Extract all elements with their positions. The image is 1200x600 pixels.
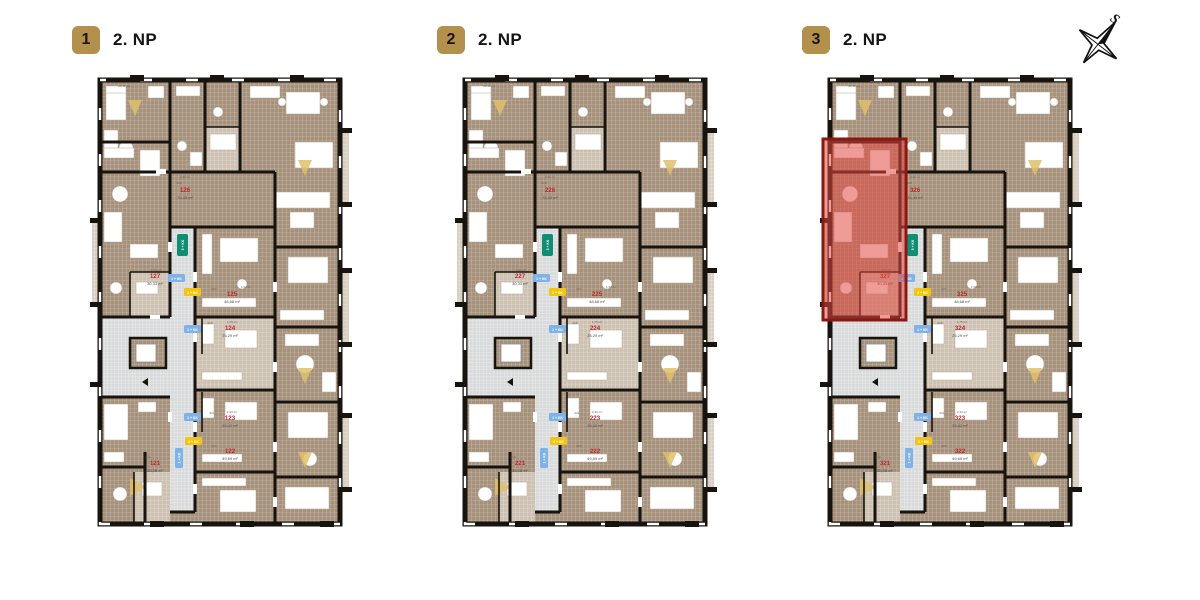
svg-text:30,33 m²: 30,33 m² [512, 281, 528, 286]
svg-text:75,43 m²: 75,43 m² [177, 195, 193, 200]
type-badge-blue: 1 + KK [175, 448, 183, 468]
type-badge-yellow: 2 + KK [549, 288, 566, 296]
svg-text:3,32 m²: 3,32 m² [180, 175, 190, 179]
svg-text:2 + KK: 2 + KK [917, 291, 928, 295]
type-badge-blue: 1 + KK [540, 448, 548, 468]
svg-text:024: 024 [941, 444, 946, 448]
svg-text:3 + KK: 3 + KK [546, 239, 550, 250]
svg-text:324: 324 [955, 325, 966, 332]
elevator [860, 338, 896, 368]
svg-text:2 + KK: 2 + KK [187, 291, 198, 295]
svg-text:75,43 m²: 75,43 m² [907, 195, 923, 200]
type-badge-green: 3 + KK [542, 234, 553, 256]
panel-header: 2 2. NP [437, 26, 737, 54]
svg-text:35,08 m²: 35,08 m² [877, 468, 893, 473]
svg-text:2 + KK: 2 + KK [553, 440, 564, 444]
svg-text:125: 125 [227, 291, 238, 298]
svg-text:2 + KK: 2 + KK [552, 291, 563, 295]
svg-text:123: 123 [225, 415, 236, 422]
svg-text:25,42 m²: 25,42 m² [587, 423, 603, 428]
compass-north-label: S [1107, 10, 1123, 27]
svg-text:025: 025 [207, 321, 212, 325]
type-badge-yellow: 2 + KK [184, 288, 201, 296]
page-canvas: 1 2. NP [0, 0, 1200, 600]
panel-header: 1 2. NP [72, 26, 372, 54]
svg-text:2,41 m²: 2,41 m² [516, 268, 526, 272]
svg-text:1,30 m²: 1,30 m² [606, 285, 616, 289]
svg-text:10,30 m²: 10,30 m² [848, 84, 860, 88]
svg-text:1,75 m²: 1,75 m² [227, 320, 237, 324]
svg-text:1 + KK: 1 + KK [543, 452, 547, 463]
svg-text:019: 019 [510, 455, 515, 459]
svg-text:49,69 m²: 49,69 m² [952, 456, 968, 461]
elevator [130, 338, 166, 368]
svg-text:3 + KK: 3 + KK [181, 239, 185, 250]
svg-text:1 + KK: 1 + KK [187, 328, 198, 332]
compass-icon: S [1066, 8, 1130, 72]
type-badge-yellow: 2 + KK [550, 437, 567, 445]
type-badge-yellow: 2 + KK [185, 437, 202, 445]
svg-text:226: 226 [545, 187, 556, 194]
svg-text:021: 021 [574, 411, 579, 415]
svg-text:48,68 m²: 48,68 m² [224, 299, 240, 304]
svg-text:024: 024 [211, 444, 216, 448]
floor-title: 2. NP [113, 30, 157, 50]
type-badge-blue: 1 + KK [914, 325, 931, 333]
svg-text:35,08 m²: 35,08 m² [512, 468, 528, 473]
floorplan-svg: 3,32 m² 028 2,41 m² 027 1,30 m² 025 1,75… [90, 72, 352, 548]
svg-text:48,68 m²: 48,68 m² [954, 299, 970, 304]
svg-text:028: 028 [176, 181, 181, 185]
type-badge-blue: 1 + KK [549, 413, 566, 421]
svg-text:1,75 m²: 1,75 m² [592, 320, 602, 324]
floorplan-svg: 3,32 m² 028 2,41 m² 027 1,30 m² 025 1,75… [820, 72, 1082, 548]
svg-text:025: 025 [937, 321, 942, 325]
type-badge-blue: 1 + KK [905, 448, 913, 468]
type-badge-green: 3 + KK [177, 234, 188, 256]
svg-text:027: 027 [576, 287, 581, 291]
svg-text:227: 227 [515, 273, 526, 280]
svg-text:121: 121 [150, 460, 161, 467]
svg-text:126: 126 [180, 187, 191, 194]
svg-text:30,33 m²: 30,33 m² [147, 281, 163, 286]
svg-text:1 + KK: 1 + KK [917, 416, 928, 420]
svg-text:2,33 m²: 2,33 m² [957, 410, 967, 414]
floorplan-panel: 1 2. NP [72, 26, 372, 548]
svg-text:028: 028 [541, 181, 546, 185]
svg-text:2,33 m²: 2,33 m² [227, 410, 237, 414]
svg-text:1,75 m²: 1,75 m² [957, 320, 967, 324]
panel-header: 3 2. NP [802, 26, 1102, 54]
svg-text:1 + KK: 1 + KK [178, 452, 182, 463]
svg-text:3 + KK: 3 + KK [911, 239, 915, 250]
svg-text:3,32 m²: 3,32 m² [910, 175, 920, 179]
floor-number-badge: 2 [437, 26, 465, 54]
svg-text:10,30 m²: 10,30 m² [483, 84, 495, 88]
svg-text:223: 223 [590, 415, 601, 422]
type-badge-blue: 1 + KK [184, 325, 201, 333]
svg-text:025: 025 [572, 321, 577, 325]
svg-text:35,08 m²: 35,08 m² [147, 468, 163, 473]
svg-text:25,29 m²: 25,29 m² [222, 333, 238, 338]
highlighted-unit-overlay[interactable] [823, 139, 906, 320]
svg-text:1 + KK: 1 + KK [187, 416, 198, 420]
svg-text:222: 222 [590, 448, 601, 455]
svg-text:225: 225 [592, 291, 603, 298]
svg-text:323: 323 [955, 415, 966, 422]
svg-text:224: 224 [590, 325, 601, 332]
svg-text:25,29 m²: 25,29 m² [952, 333, 968, 338]
svg-text:127: 127 [150, 273, 161, 280]
svg-text:25,42 m²: 25,42 m² [952, 423, 968, 428]
svg-text:021: 021 [209, 411, 214, 415]
svg-text:021: 021 [939, 411, 944, 415]
type-badge-blue: 1 + KK [533, 274, 550, 282]
svg-text:322: 322 [955, 448, 966, 455]
svg-text:124: 124 [225, 325, 236, 332]
svg-text:027: 027 [941, 287, 946, 291]
svg-text:75,43 m²: 75,43 m² [542, 195, 558, 200]
svg-text:027: 027 [211, 287, 216, 291]
svg-text:2,33 m²: 2,33 m² [592, 410, 602, 414]
svg-text:49,69 m²: 49,69 m² [222, 456, 238, 461]
elevator [495, 338, 531, 368]
svg-text:024: 024 [576, 444, 581, 448]
svg-text:2 + KK: 2 + KK [918, 440, 929, 444]
svg-text:221: 221 [515, 460, 526, 467]
type-badge-yellow: 2 + KK [914, 288, 931, 296]
svg-text:326: 326 [910, 187, 921, 194]
svg-text:25,29 m²: 25,29 m² [587, 333, 603, 338]
svg-text:10,30 m²: 10,30 m² [118, 84, 130, 88]
type-badge-blue: 1 + KK [914, 413, 931, 421]
svg-text:1 + KK: 1 + KK [171, 277, 182, 281]
svg-text:25,42 m²: 25,42 m² [222, 423, 238, 428]
type-badge-blue: 1 + KK [184, 413, 201, 421]
svg-text:2,41 m²: 2,41 m² [151, 268, 161, 272]
svg-text:321: 321 [880, 460, 891, 467]
svg-text:1 + KK: 1 + KK [536, 277, 547, 281]
floorplan-svg: 3,32 m² 028 2,41 m² 027 1,30 m² 025 1,75… [455, 72, 717, 548]
floor-title: 2. NP [478, 30, 522, 50]
svg-text:1,30 m²: 1,30 m² [971, 285, 981, 289]
svg-text:2 + KK: 2 + KK [188, 440, 199, 444]
svg-text:1 + KK: 1 + KK [908, 452, 912, 463]
svg-text:3,32 m²: 3,32 m² [545, 175, 555, 179]
floor-number-badge: 3 [802, 26, 830, 54]
svg-text:1,30 m²: 1,30 m² [241, 285, 251, 289]
svg-text:49,69 m²: 49,69 m² [587, 456, 603, 461]
svg-text:019: 019 [145, 455, 150, 459]
svg-text:019: 019 [875, 455, 880, 459]
type-badge-blue: 1 + KK [168, 274, 185, 282]
type-badge-green: 3 + KK [907, 234, 918, 256]
svg-text:48,68 m²: 48,68 m² [589, 299, 605, 304]
type-badge-blue: 1 + KK [549, 325, 566, 333]
svg-text:1 + KK: 1 + KK [552, 416, 563, 420]
type-badge-yellow: 2 + KK [915, 437, 932, 445]
floor-number-badge: 1 [72, 26, 100, 54]
svg-text:122: 122 [225, 448, 236, 455]
floorplan-panel: 3 2. NP [802, 26, 1102, 548]
svg-text:325: 325 [957, 291, 968, 298]
floorplan-panel: 2 2. NP [437, 26, 737, 548]
svg-text:1 + KK: 1 + KK [917, 328, 928, 332]
floor-title: 2. NP [843, 30, 887, 50]
svg-text:1 + KK: 1 + KK [552, 328, 563, 332]
